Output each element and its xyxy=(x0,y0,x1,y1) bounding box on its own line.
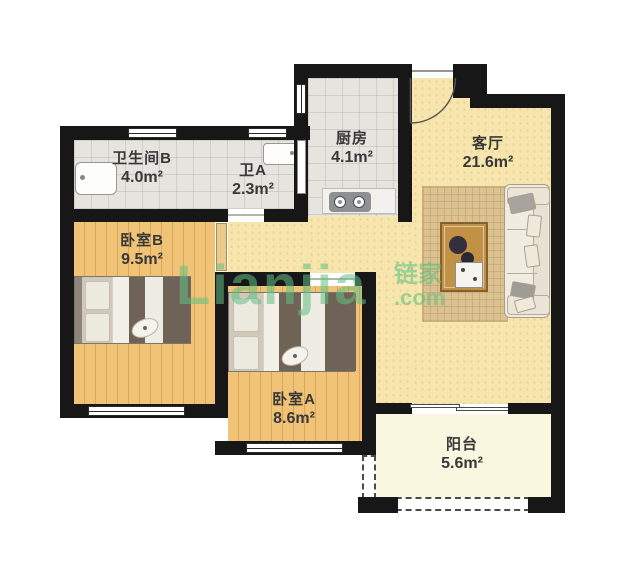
wall xyxy=(551,94,565,513)
wall xyxy=(264,209,308,222)
room-area: 4.0m² xyxy=(112,168,172,187)
wall xyxy=(215,272,228,418)
door-opening xyxy=(310,278,355,280)
table-decor-icon xyxy=(449,236,467,254)
bed-icon xyxy=(74,276,191,344)
living-strip-floor xyxy=(376,273,412,404)
wall xyxy=(398,64,412,222)
room-name: 卫A xyxy=(232,162,274,180)
sliding-door xyxy=(456,407,510,411)
wall xyxy=(362,272,376,455)
wall xyxy=(453,64,487,98)
room-name: 卧室A xyxy=(272,391,316,409)
throw-pillow-icon xyxy=(524,244,541,268)
room-area: 21.6m² xyxy=(463,153,514,172)
throw-pillow-icon xyxy=(526,214,542,237)
window xyxy=(248,128,287,138)
wall xyxy=(60,209,222,222)
room-label-balcony: 阳台 5.6m² xyxy=(441,436,483,473)
bedroom-b-door-leaf xyxy=(216,223,227,271)
window xyxy=(128,128,177,138)
room-label-bedroom-a: 卧室A 8.6m² xyxy=(272,391,316,428)
room-label-kitchen: 厨房 4.1m² xyxy=(331,130,373,167)
window xyxy=(296,84,306,114)
table-tray-icon xyxy=(455,262,483,288)
balcony-dashed-boundary xyxy=(376,497,530,511)
floorplan-canvas: 卫生间B 4.0m² 卫A 2.3m² 厨房 4.1m² 客厅 21.6m² 卧… xyxy=(0,0,623,572)
door-opening xyxy=(222,214,264,216)
room-area: 2.3m² xyxy=(232,180,274,199)
sliding-door xyxy=(410,404,460,408)
window xyxy=(246,443,343,453)
room-name: 卫生间B xyxy=(112,150,172,168)
window xyxy=(88,406,185,416)
room-name: 阳台 xyxy=(441,436,483,454)
wall xyxy=(508,403,551,414)
bed-icon xyxy=(228,292,355,372)
gas-stove-icon xyxy=(329,192,371,212)
room-area: 4.1m² xyxy=(331,148,373,167)
room-area: 8.6m² xyxy=(272,409,316,428)
room-area: 9.5m² xyxy=(120,250,164,269)
sofa-icon xyxy=(504,184,550,318)
burner-icon xyxy=(334,196,346,208)
hallway-floor-2 xyxy=(308,216,412,273)
wall xyxy=(215,272,310,286)
coffee-table-icon xyxy=(440,222,488,292)
wall xyxy=(358,497,398,513)
wall xyxy=(294,64,412,78)
room-label-bedroom-b: 卧室B 9.5m² xyxy=(120,232,164,269)
room-area: 5.6m² xyxy=(441,454,483,473)
wall xyxy=(215,209,228,222)
bathtub-drain-icon xyxy=(80,175,85,180)
bathroom-door-leaf xyxy=(297,140,306,194)
room-label-bathroom-a: 卫A 2.3m² xyxy=(232,162,274,199)
room-label-bathroom-b: 卫生间B 4.0m² xyxy=(112,150,172,187)
hallway-floor xyxy=(228,222,308,273)
room-name: 卧室B xyxy=(120,232,164,250)
room-name: 厨房 xyxy=(331,130,373,148)
bathtub-icon xyxy=(75,162,117,195)
wall xyxy=(528,497,565,513)
entry-door-opening xyxy=(412,70,453,72)
kitchen-counter xyxy=(322,188,396,214)
burner-icon xyxy=(353,196,365,208)
room-name: 客厅 xyxy=(463,135,514,153)
balcony-dashed-boundary xyxy=(362,455,376,499)
wall xyxy=(376,403,412,414)
wall xyxy=(60,126,74,418)
room-label-living-room: 客厅 21.6m² xyxy=(463,135,514,172)
